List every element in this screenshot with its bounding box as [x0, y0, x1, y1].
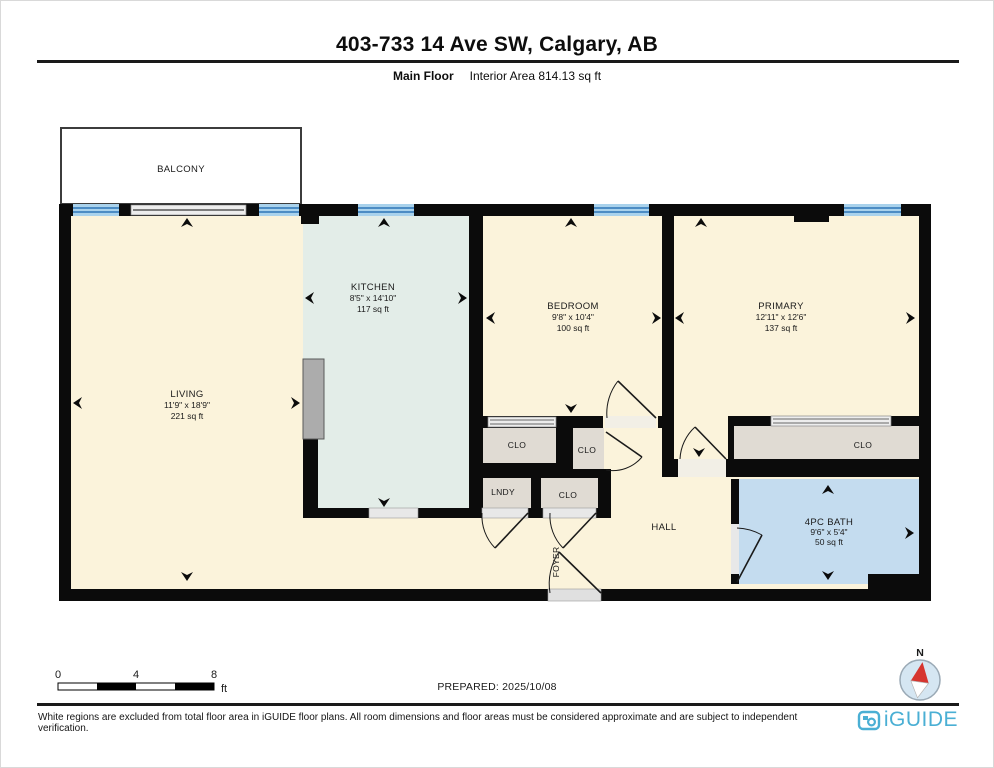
bedroom-label: BEDROOM [547, 301, 599, 312]
kitchen-counter [303, 359, 324, 439]
floorplan-drawing: BALCONY LIVING 11'9" x 18'9" 221 sq ft K… [1, 1, 994, 768]
closet-primary [734, 424, 919, 461]
disclaimer-text: White regions are excluded from total fl… [38, 712, 808, 734]
living-dims: 11'9" x 18'9" [164, 400, 210, 410]
clo-hall-label: CLO [578, 445, 596, 455]
window-icon [594, 204, 649, 216]
scale-mid: 4 [133, 669, 139, 681]
room-kitchen [303, 216, 469, 508]
clo-mid-label: CLO [559, 490, 577, 500]
window-icon [844, 204, 901, 216]
iguide-logo-icon [857, 709, 881, 731]
kitchen-dims: 8'5" x 14'10" [350, 293, 397, 303]
hall-label: HALL [651, 522, 676, 533]
foyer-label: FOYER [551, 547, 561, 578]
bedroom-area: 100 sq ft [557, 323, 590, 333]
iguide-logo: iGUIDE [857, 708, 958, 732]
kitchen-area: 117 sq ft [357, 304, 390, 314]
primary-dims: 12'11" x 12'6" [756, 312, 807, 322]
clo-bedroom-label: CLO [508, 440, 526, 450]
window-icon [73, 204, 119, 216]
bath-area: 50 sq ft [815, 537, 844, 547]
living-area: 221 sq ft [171, 411, 204, 421]
footer-divider [37, 703, 959, 706]
bedroom-dims: 9'8" x 10'4" [552, 312, 594, 322]
kitchen-label: KITCHEN [351, 282, 395, 293]
balcony-label: BALCONY [157, 164, 205, 175]
scale-start: 0 [55, 669, 61, 681]
footer: White regions are excluded from total fl… [38, 712, 958, 734]
floorplan-page: 403-733 14 Ave SW, Calgary, AB Main Floo… [0, 0, 994, 768]
prepared-date: PREPARED: 2025/10/08 [1, 681, 993, 693]
clo-primary-label: CLO [854, 440, 872, 450]
lndy-label: LNDY [491, 487, 515, 497]
living-label: LIVING [170, 389, 203, 400]
iguide-logo-text: iGUIDE [884, 708, 958, 732]
compass-north-label: N [916, 647, 924, 659]
primary-area: 137 sq ft [765, 323, 798, 333]
primary-label: PRIMARY [758, 301, 804, 312]
window-icon [358, 204, 414, 216]
bath-dims: 9'6" x 5'4" [810, 527, 847, 537]
window-icon [259, 204, 299, 216]
scale-end: 8 [211, 669, 217, 681]
